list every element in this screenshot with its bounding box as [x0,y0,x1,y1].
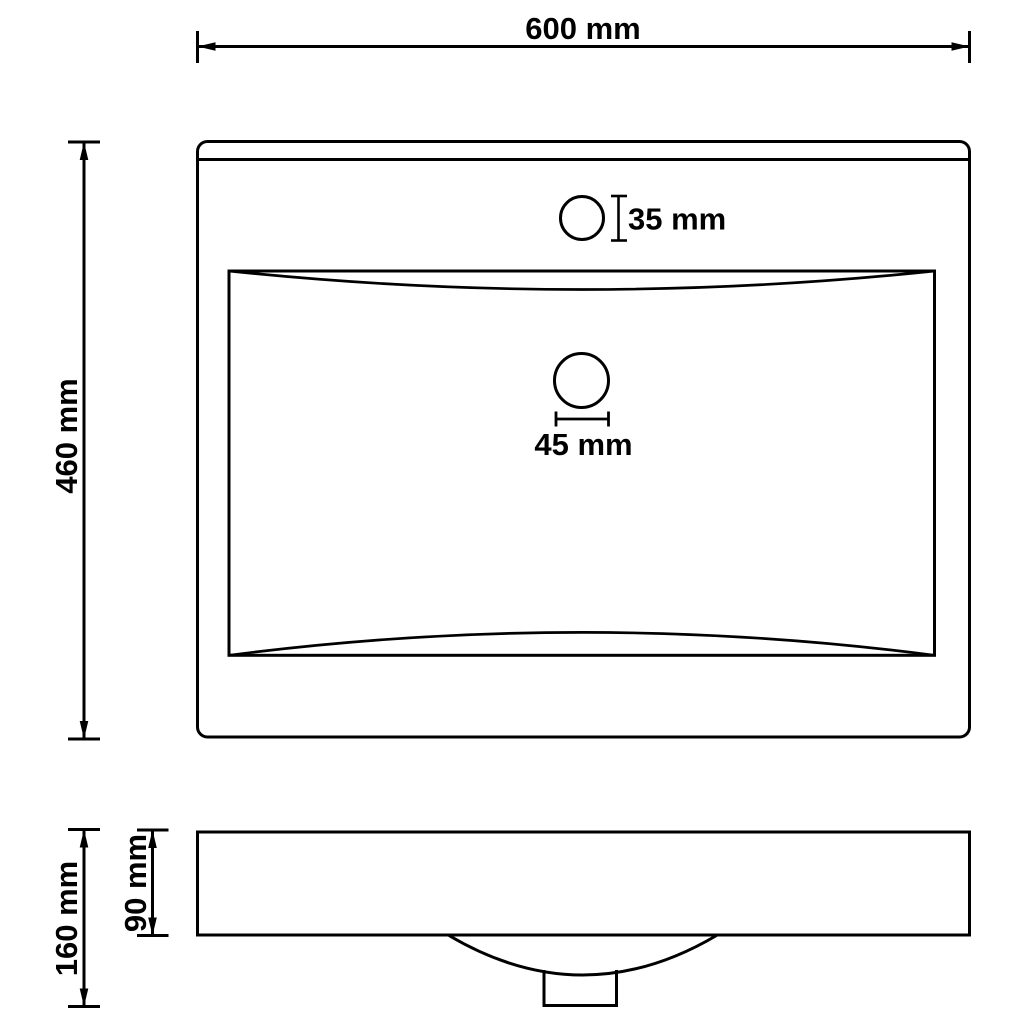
svg-text:160 mm: 160 mm [49,861,84,976]
svg-text:600 mm: 600 mm [525,11,640,46]
svg-text:90 mm: 90 mm [118,834,153,932]
svg-text:45 mm: 45 mm [534,427,632,462]
svg-text:35 mm: 35 mm [628,202,726,237]
svg-text:460 mm: 460 mm [49,378,84,493]
